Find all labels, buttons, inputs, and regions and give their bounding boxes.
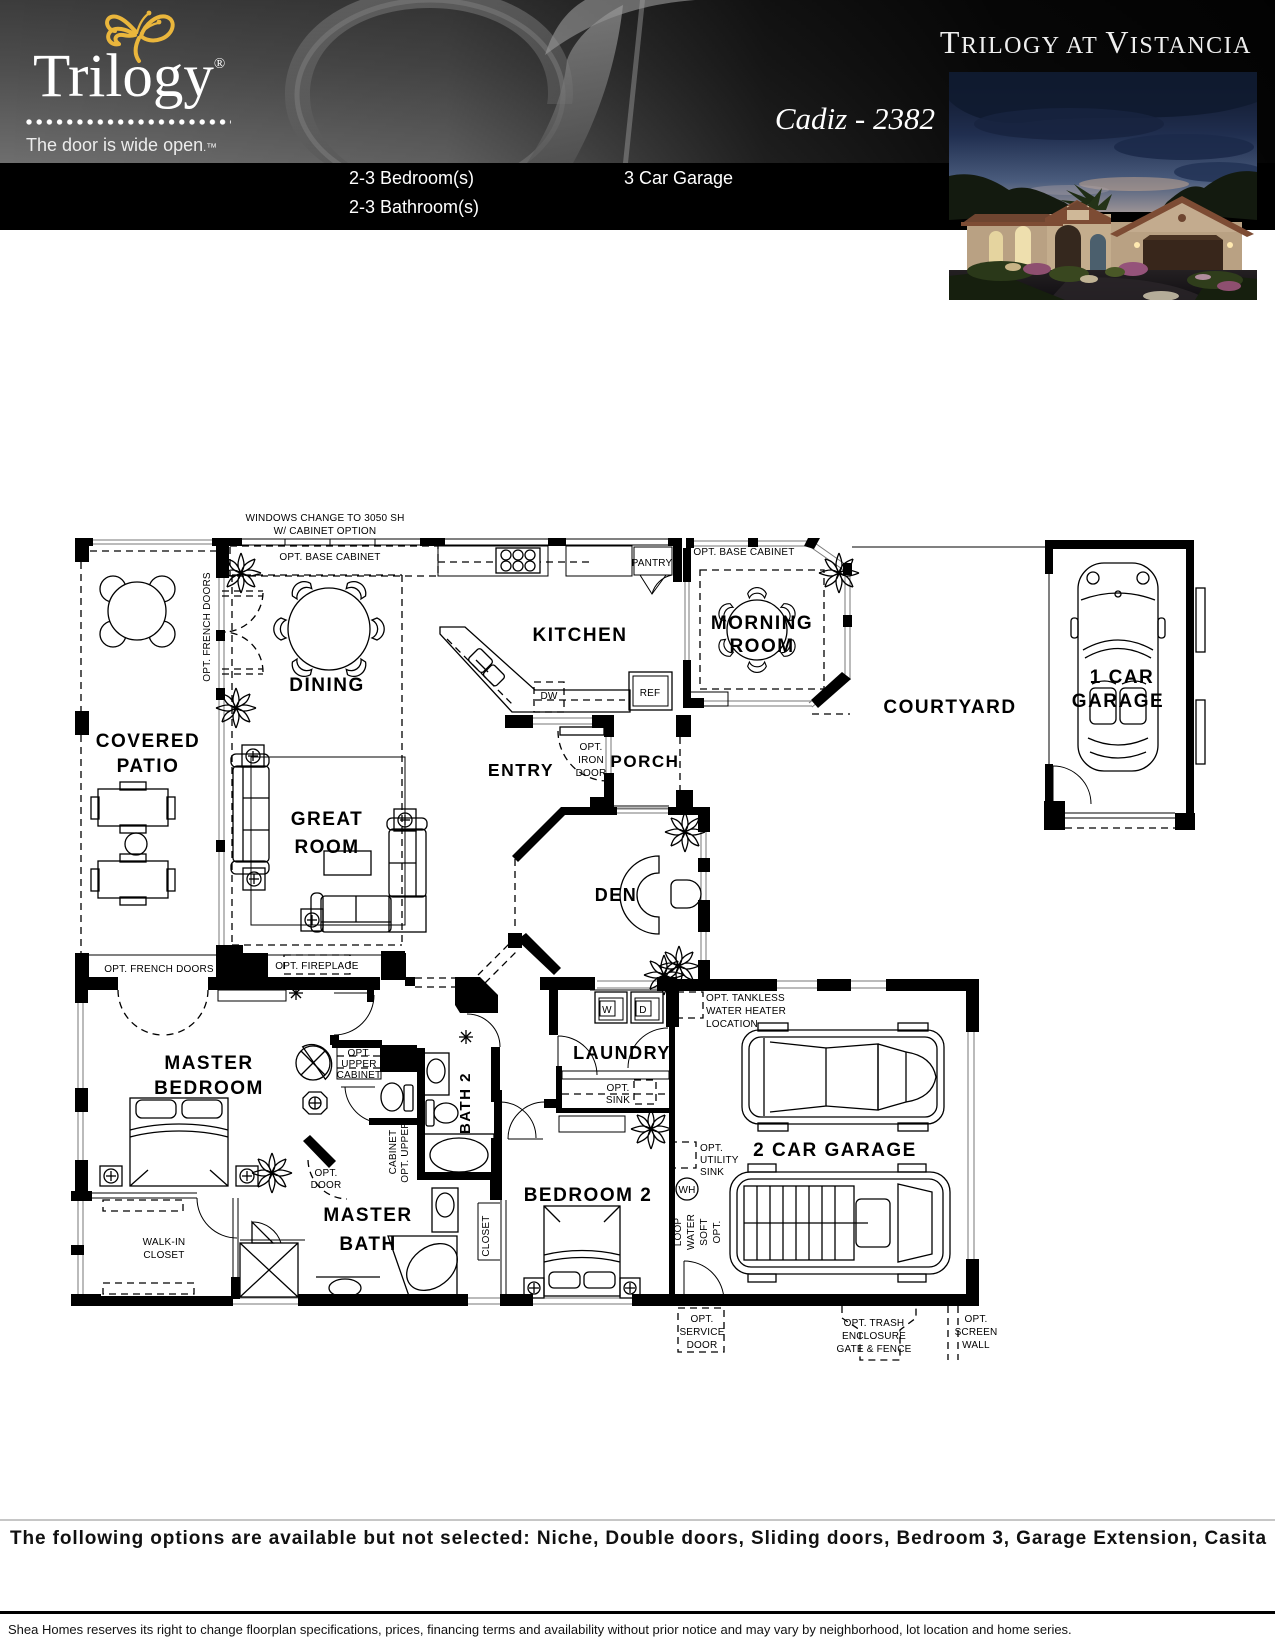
svg-text:OPT.: OPT. bbox=[712, 1220, 723, 1243]
svg-text:OPT. BASE CABINET: OPT. BASE CABINET bbox=[279, 552, 380, 563]
svg-text:DOOR: DOOR bbox=[576, 768, 607, 779]
svg-text:WATER: WATER bbox=[686, 1214, 697, 1250]
svg-text:OPT. FRENCH DOORS: OPT. FRENCH DOORS bbox=[104, 964, 214, 975]
svg-text:OPT. TANKLESS: OPT. TANKLESS bbox=[706, 993, 785, 1004]
svg-text:DEN: DEN bbox=[595, 885, 638, 905]
svg-text:OPT. TRASH: OPT. TRASH bbox=[844, 1318, 905, 1329]
svg-text:OPT.: OPT. bbox=[964, 1314, 987, 1325]
svg-text:DW: DW bbox=[540, 691, 557, 702]
svg-text:2 CAR GARAGE: 2 CAR GARAGE bbox=[753, 1140, 917, 1161]
svg-text:ROOM: ROOM bbox=[729, 636, 794, 657]
svg-text:BATH 2: BATH 2 bbox=[457, 1072, 474, 1134]
svg-text:CLOSET: CLOSET bbox=[481, 1215, 492, 1256]
svg-text:W: W bbox=[602, 1005, 612, 1016]
svg-text:ENCLOSURE: ENCLOSURE bbox=[842, 1331, 906, 1342]
svg-text:LOCATION: LOCATION bbox=[706, 1019, 758, 1030]
svg-text:ROOM: ROOM bbox=[294, 837, 359, 858]
svg-text:PORCH: PORCH bbox=[611, 752, 680, 771]
svg-text:PANTRY: PANTRY bbox=[632, 558, 673, 569]
svg-text:DOOR: DOOR bbox=[687, 1340, 718, 1351]
svg-text:WH: WH bbox=[678, 1185, 695, 1196]
svg-text:PATIO: PATIO bbox=[117, 756, 180, 777]
svg-text:SERVICE: SERVICE bbox=[679, 1327, 724, 1338]
svg-text:KITCHEN: KITCHEN bbox=[533, 625, 628, 646]
svg-text:WALK-IN: WALK-IN bbox=[143, 1237, 186, 1248]
svg-text:GREAT: GREAT bbox=[291, 809, 364, 830]
svg-text:SOFT: SOFT bbox=[699, 1218, 710, 1245]
svg-text:SINK: SINK bbox=[606, 1095, 630, 1106]
svg-text:IRON: IRON bbox=[578, 755, 604, 766]
svg-text:MASTER: MASTER bbox=[164, 1053, 253, 1074]
svg-text:UTILITY: UTILITY bbox=[700, 1155, 739, 1166]
svg-text:CABINET: CABINET bbox=[337, 1070, 382, 1081]
svg-text:MORNING: MORNING bbox=[711, 613, 813, 634]
svg-text:WATER HEATER: WATER HEATER bbox=[706, 1006, 786, 1017]
svg-text:CABINET: CABINET bbox=[388, 1130, 399, 1175]
svg-text:1 CAR: 1 CAR bbox=[1090, 667, 1155, 688]
svg-text:DINING: DINING bbox=[289, 675, 365, 696]
svg-text:WINDOWS CHANGE TO 3050 SH: WINDOWS CHANGE TO 3050 SH bbox=[245, 513, 404, 524]
svg-text:OPT.: OPT. bbox=[700, 1143, 723, 1154]
svg-text:OPT.: OPT. bbox=[690, 1314, 713, 1325]
svg-text:OPT. FRENCH DOORS: OPT. FRENCH DOORS bbox=[202, 572, 213, 682]
svg-text:REF: REF bbox=[640, 688, 661, 699]
svg-text:DOOR: DOOR bbox=[311, 1180, 342, 1191]
svg-text:CLOSET: CLOSET bbox=[143, 1250, 184, 1261]
svg-text:LAUNDRY: LAUNDRY bbox=[573, 1043, 671, 1063]
svg-text:GATE & FENCE: GATE & FENCE bbox=[836, 1344, 911, 1355]
svg-text:BEDROOM 2: BEDROOM 2 bbox=[524, 1185, 653, 1206]
svg-text:OPT. UPPER: OPT. UPPER bbox=[400, 1121, 411, 1182]
svg-text:W/ CABINET OPTION: W/ CABINET OPTION bbox=[274, 526, 377, 537]
svg-text:OPT.: OPT. bbox=[606, 1083, 629, 1094]
svg-text:ENTRY: ENTRY bbox=[488, 760, 554, 780]
svg-text:COURTYARD: COURTYARD bbox=[883, 697, 1016, 718]
svg-text:SCREEN: SCREEN bbox=[955, 1327, 998, 1338]
svg-text:COVERED: COVERED bbox=[96, 731, 200, 752]
svg-text:OPT.: OPT. bbox=[579, 742, 602, 753]
svg-text:BEDROOM: BEDROOM bbox=[154, 1078, 264, 1099]
svg-text:UPPER: UPPER bbox=[341, 1059, 376, 1070]
svg-text:SINK: SINK bbox=[700, 1167, 724, 1178]
svg-text:GARAGE: GARAGE bbox=[1072, 691, 1164, 712]
svg-text:LOOP: LOOP bbox=[673, 1218, 684, 1247]
svg-text:D: D bbox=[639, 1005, 646, 1016]
svg-text:OPT.: OPT. bbox=[314, 1168, 337, 1179]
svg-text:OPT. BASE CABINET: OPT. BASE CABINET bbox=[693, 547, 794, 558]
svg-text:OPT.: OPT. bbox=[347, 1048, 370, 1059]
svg-text:OPT. FIREPLACE: OPT. FIREPLACE bbox=[275, 961, 359, 972]
svg-text:MASTER: MASTER bbox=[323, 1205, 412, 1226]
svg-text:WALL: WALL bbox=[962, 1340, 990, 1351]
svg-text:BATH: BATH bbox=[339, 1234, 396, 1255]
